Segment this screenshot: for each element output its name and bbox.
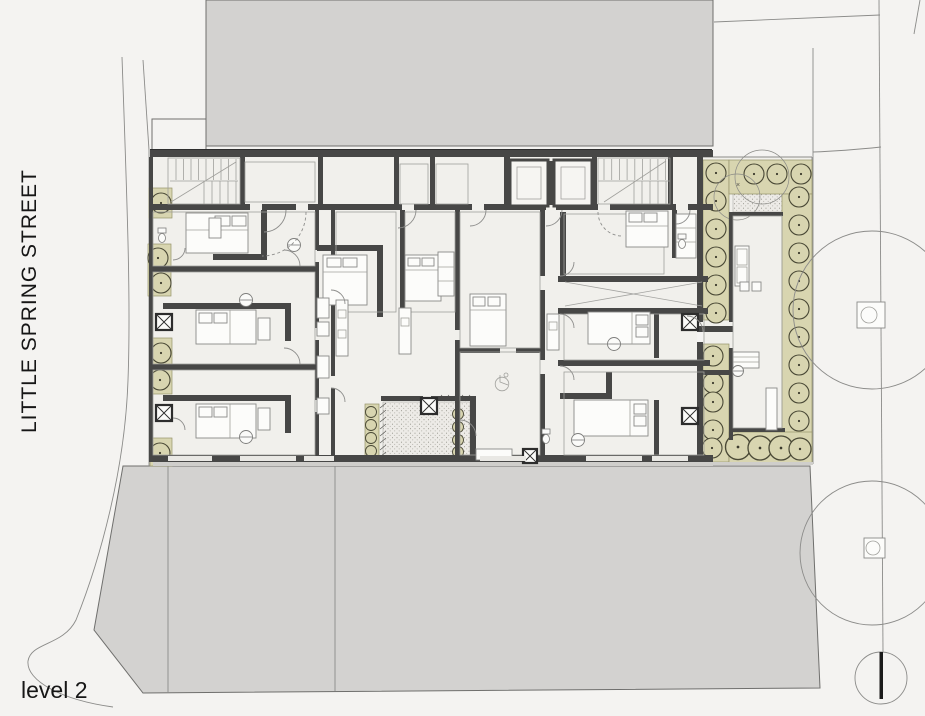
kitchen-counter <box>336 300 348 356</box>
tree-icon <box>706 303 726 323</box>
tree-canopy-outline <box>800 481 925 625</box>
tree-icon <box>703 392 723 412</box>
north-building-notch <box>152 119 206 150</box>
terrace-table <box>740 282 749 291</box>
east-terrace-path <box>733 192 783 212</box>
bed-symbol <box>626 211 668 247</box>
toilet-icon <box>678 234 686 249</box>
floor-plan-drawing: × <box>0 0 925 716</box>
exterior-wall-west <box>149 157 153 462</box>
tree-icon <box>789 355 809 375</box>
level-label: level 2 <box>21 677 87 703</box>
kitchen-counter <box>547 314 559 350</box>
tree-icon <box>789 299 809 319</box>
toilet-icon <box>542 429 550 444</box>
exterior-wall-east-upper <box>697 157 703 322</box>
lot-line-west <box>143 60 149 150</box>
tree-icon <box>789 438 811 460</box>
tree-icon <box>789 243 809 263</box>
tree-icon <box>791 164 811 184</box>
terrace-table <box>752 282 761 291</box>
bed-symbol <box>196 310 256 344</box>
tree-icon <box>767 164 787 184</box>
site-plan-canvas: × <box>0 0 925 716</box>
courtyard-marker: × <box>736 182 740 189</box>
elevator-1 <box>510 160 548 206</box>
kerb-curve-east <box>813 147 881 152</box>
exterior-wall-north <box>150 150 713 157</box>
bed-symbol <box>323 255 367 305</box>
closet <box>438 252 454 296</box>
bed-symbol <box>574 400 648 436</box>
terrace-sofa <box>735 246 749 286</box>
terrace-planter-box <box>766 388 777 430</box>
south-sill-band <box>153 462 713 466</box>
bed-symbol <box>470 294 506 346</box>
tree-icon <box>789 327 809 347</box>
tree-icon <box>706 275 726 295</box>
tree-icon <box>703 373 723 393</box>
tree-icon <box>789 271 809 291</box>
tree-icon <box>789 383 809 403</box>
tree-icon <box>151 343 171 363</box>
labels: LITTLE SPRING STREET level 2 <box>18 169 87 703</box>
tree-icon <box>789 411 809 431</box>
tree-icon <box>706 219 726 239</box>
street-label: LITTLE SPRING STREET <box>18 169 41 433</box>
tree-icon <box>151 273 171 293</box>
corner-line-ne <box>914 0 920 34</box>
adjacent-building-south <box>94 466 820 693</box>
pole-symbol <box>880 652 884 699</box>
adjacent-building-north <box>206 0 713 146</box>
tree-icon <box>789 215 809 235</box>
toilet-icon <box>158 228 166 243</box>
tree-icon <box>706 163 726 183</box>
tree-icon <box>789 187 809 207</box>
elevator-2 <box>554 160 592 206</box>
bed-symbol <box>405 255 441 301</box>
tree-icon <box>706 247 726 267</box>
kitchen-counter <box>399 308 411 354</box>
tree-icon <box>703 420 723 440</box>
lot-line-north-east <box>714 15 880 22</box>
